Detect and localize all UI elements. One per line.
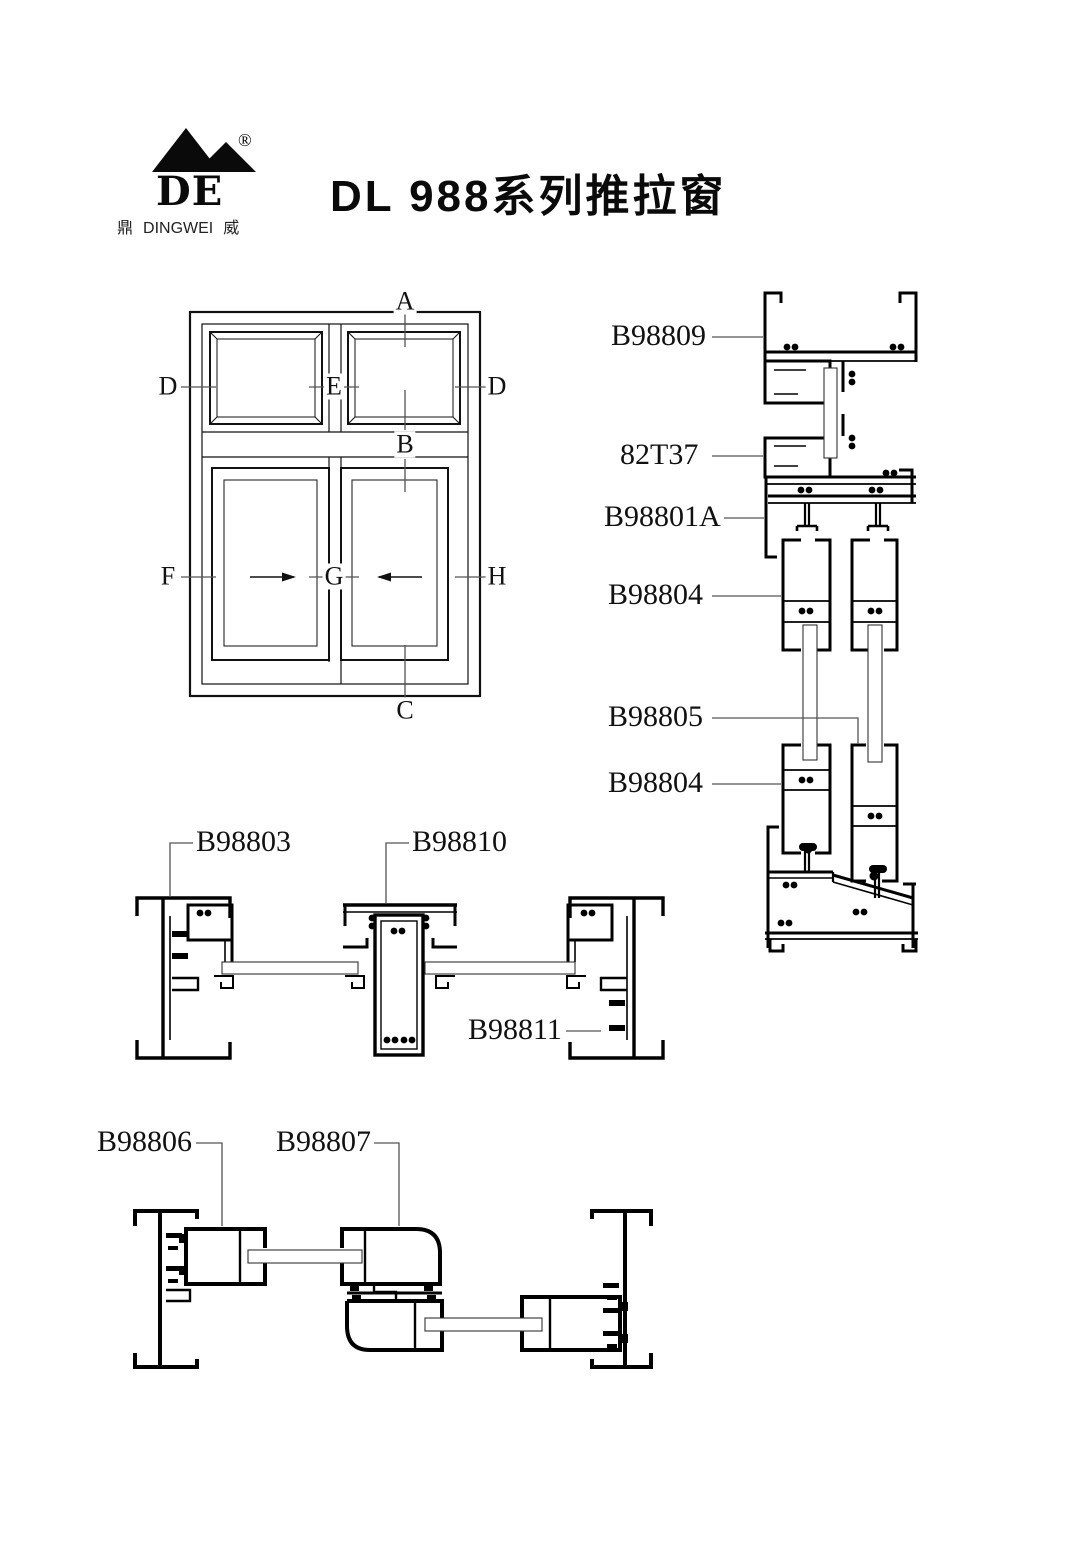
interlock-sash-upper-profile — [342, 1229, 440, 1299]
part-label-b98804-bottom: B98804 — [608, 768, 703, 798]
sill-profile — [765, 827, 918, 951]
part-label-b98809: B98809 — [611, 321, 706, 351]
part-label-b98811: B98811 — [468, 1015, 562, 1045]
transom-profile — [765, 414, 916, 503]
glass-panes-mid — [222, 962, 575, 974]
elevation-label-a: A — [394, 288, 417, 314]
leader-b98810 — [386, 843, 409, 903]
logo-letters: DE — [156, 168, 223, 215]
slide-arrow-right-icon — [250, 573, 296, 582]
part-label-b98810: B98810 — [412, 827, 507, 857]
sliding-sash-right — [341, 468, 448, 660]
elevation-label-b: B — [394, 431, 415, 457]
fixed-pane-right — [348, 332, 460, 424]
elevation-label-e: E — [324, 373, 344, 399]
part-label-b98804-top: B98804 — [608, 580, 703, 610]
slider-frame-profile — [766, 477, 916, 557]
part-label-b98806: B98806 — [97, 1127, 192, 1157]
left-jamb-profile — [137, 898, 233, 1058]
brand-line: 鼎DINGWEI威 — [117, 214, 239, 238]
part-label-b98801a: B98801A — [604, 502, 721, 532]
slide-arrow-left-icon — [377, 573, 422, 582]
leader-lines — [170, 313, 858, 1226]
brand-cn-left: 鼎 — [117, 220, 133, 237]
part-label-b98807: B98807 — [276, 1127, 371, 1157]
part-label-b98803: B98803 — [196, 827, 291, 857]
registered-trademark-icon: ® — [238, 130, 252, 151]
elevation-label-d-right: D — [486, 373, 509, 399]
elevation-drawing — [190, 312, 480, 696]
elevation-label-h: H — [486, 563, 509, 589]
elevation-label-d-left: D — [157, 373, 180, 399]
leader-b98807 — [374, 1143, 399, 1226]
catalog-page: DL 988系列推拉窗 DE ® 鼎DINGWEI威 A B C D D E F… — [0, 0, 1090, 1542]
vertical-section-drawing — [765, 293, 918, 951]
fixed-pane-left — [210, 332, 322, 424]
brand-name-en: DINGWEI — [143, 220, 213, 237]
mid-section-drawing — [137, 898, 663, 1058]
elevation-label-c: C — [394, 697, 415, 723]
brand-cn-right: 威 — [223, 220, 239, 237]
sliding-sash-left — [212, 468, 329, 660]
elevation-label-f: F — [159, 563, 177, 589]
leader-b98805 — [712, 718, 858, 744]
sash-bottom-profiles — [783, 745, 897, 881]
page-title: DL 988系列推拉窗 — [330, 160, 727, 224]
head-frame-profile — [765, 293, 916, 449]
elevation-label-g: G — [323, 563, 346, 589]
mullion-profile — [343, 905, 457, 1055]
right-jamb-profile — [567, 898, 663, 1058]
part-label-82t37: 82T37 — [620, 440, 698, 470]
part-label-b98805: B98805 — [608, 702, 703, 732]
leader-b98803 — [170, 843, 193, 897]
glass-panes-bottom — [248, 1250, 542, 1331]
bottom-section-drawing — [135, 1211, 651, 1368]
leader-b98806 — [196, 1143, 222, 1226]
